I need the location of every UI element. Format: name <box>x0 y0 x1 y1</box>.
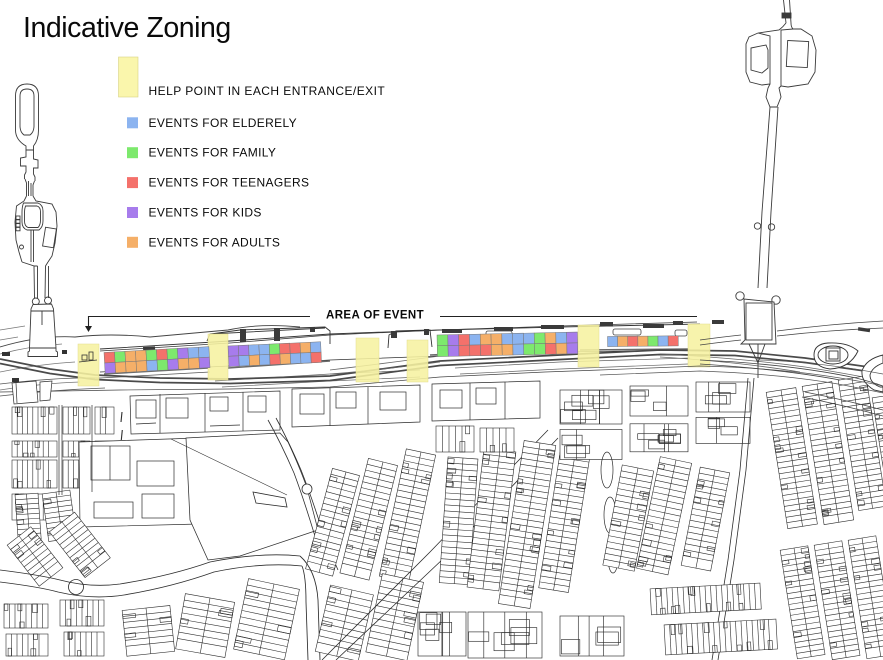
svg-text:Indicative Zoning: Indicative Zoning <box>23 12 231 44</box>
svg-text:EVENTS FOR ELDERELY: EVENTS FOR ELDERELY <box>149 116 297 130</box>
svg-text:EVENTS FOR FAMILY: EVENTS FOR FAMILY <box>149 146 277 160</box>
svg-text:AREA OF EVENT: AREA OF EVENT <box>326 310 424 322</box>
svg-text:HELP POINT IN EACH ENTRANCE/EX: HELP POINT IN EACH ENTRANCE/EXIT <box>149 84 386 98</box>
svg-text:EVENTS FOR KIDS: EVENTS FOR KIDS <box>149 206 262 220</box>
svg-text:EVENTS FOR TEENAGERS: EVENTS FOR TEENAGERS <box>149 176 310 190</box>
svg-text:EVENTS FOR ADULTS: EVENTS FOR ADULTS <box>149 235 281 249</box>
